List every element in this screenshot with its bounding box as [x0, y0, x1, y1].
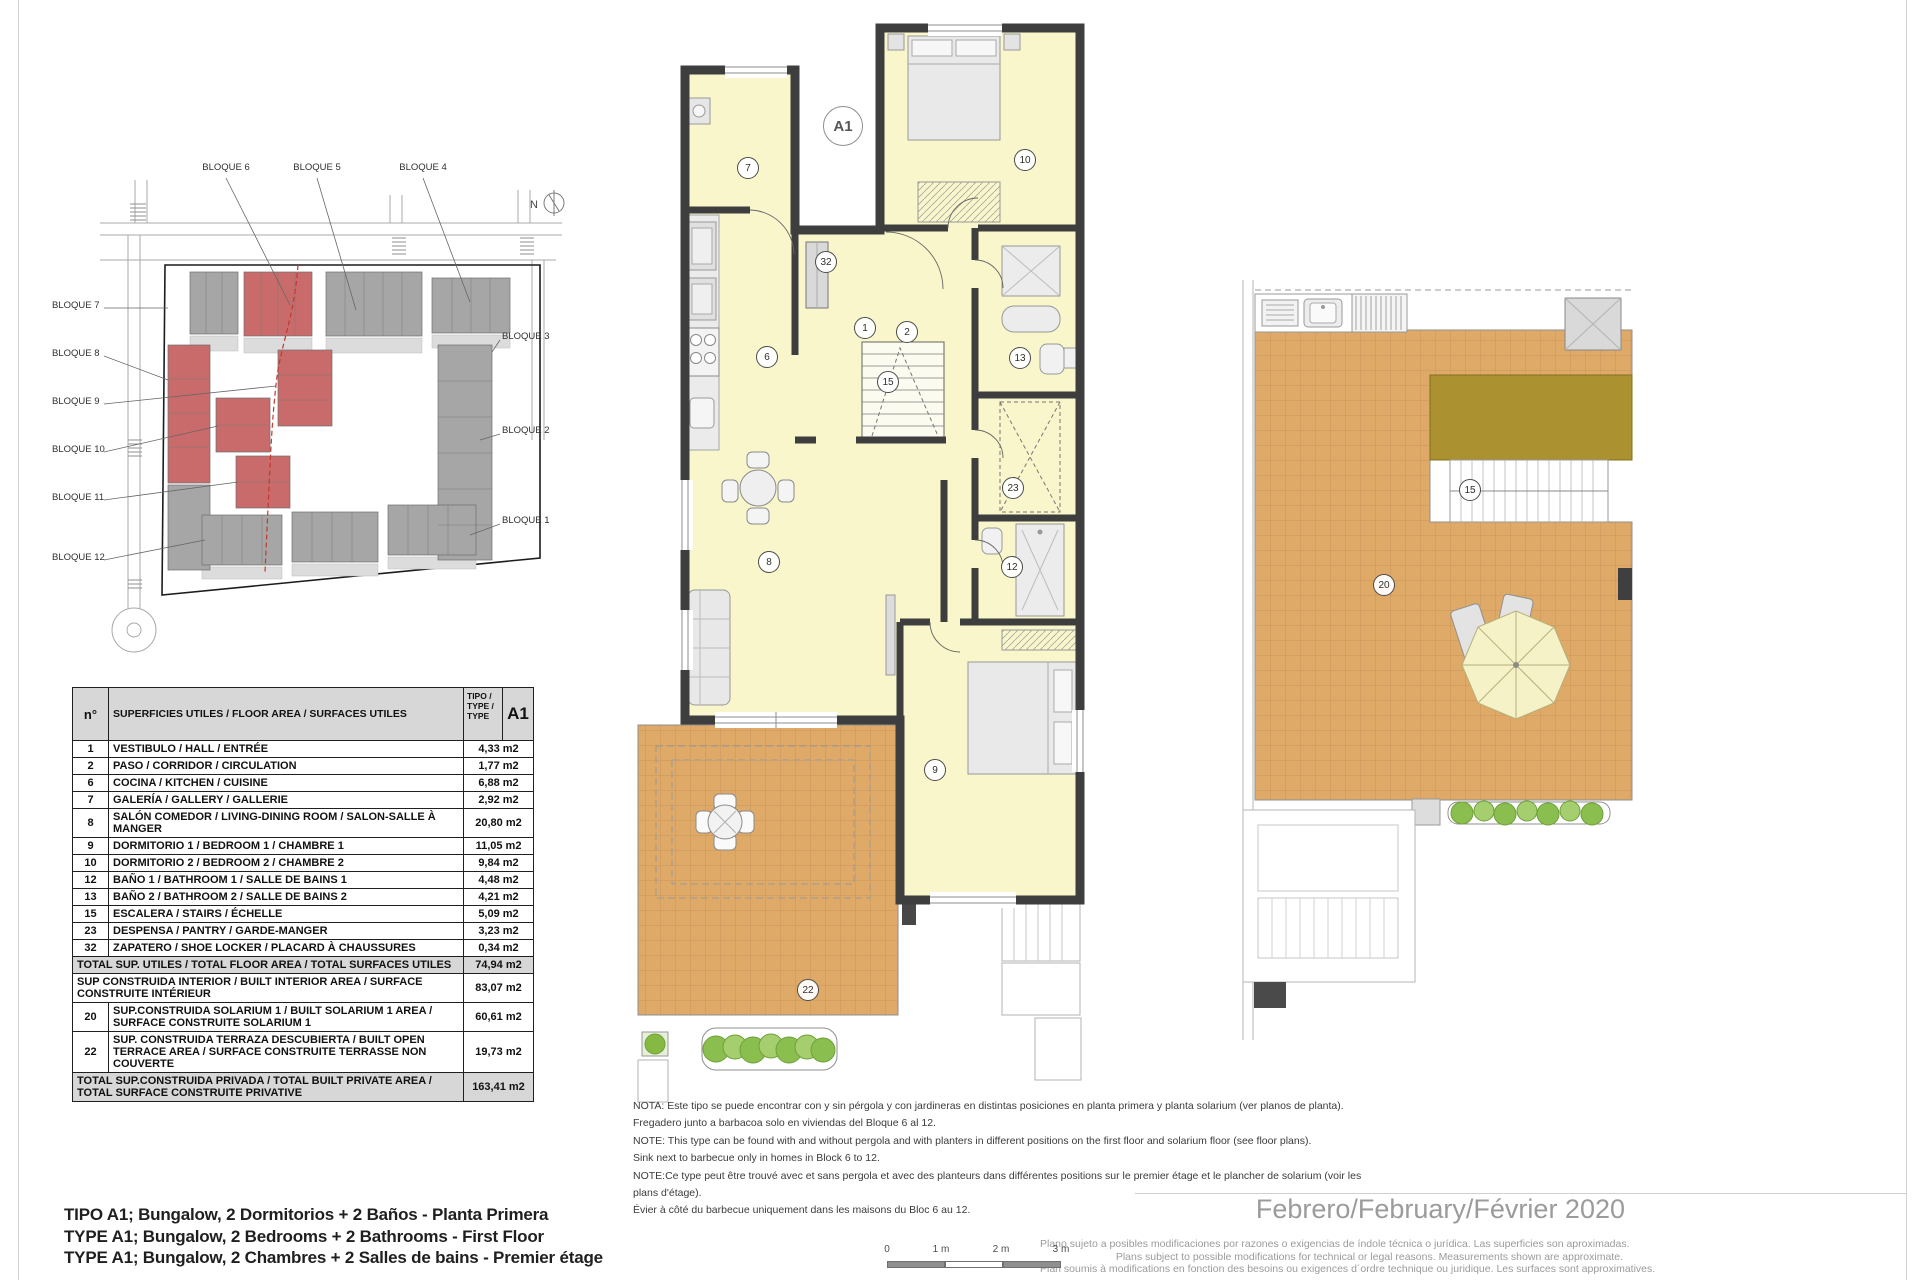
room-number-badge: 8: [758, 551, 780, 573]
area-row-label: BAÑO 1 / BATHROOM 1 / SALLE DE BAINS 1: [109, 872, 464, 889]
disclaimer-block: Plano sujeto a posibles modificaciones p…: [1040, 1238, 1623, 1276]
scale-label: 0: [870, 1244, 904, 1255]
access-hatch: [1618, 568, 1632, 600]
area-row-value: 4,48 m2: [464, 872, 534, 889]
room-number-badge: 12: [1001, 556, 1023, 578]
bathtub: [1002, 306, 1060, 332]
disclaimer-line: Plans subject to possible modifications …: [1040, 1251, 1623, 1264]
scale-label: 3 m: [1044, 1244, 1078, 1255]
room-number-badge: 10: [1014, 149, 1036, 171]
note-line: NOTE: This type can be found with and wi…: [633, 1133, 1361, 1150]
solarium-plan: 1520: [1240, 280, 1660, 1070]
plan-sheet: N BLOQUE 6BLOQUE 5BLOQUE 4BLOQUE 7BLOQUE…: [0, 0, 1920, 1280]
galeria-fixtures: [688, 98, 710, 124]
area-row-value: 4,21 m2: [464, 889, 534, 906]
area-row-value: 83,07 m2: [464, 974, 534, 1003]
area-row-value: 5,09 m2: [464, 906, 534, 923]
area-row-label: SUP CONSTRUIDA INTERIOR / BUILT INTERIOR…: [73, 974, 464, 1003]
area-table-row: 12BAÑO 1 / BATHROOM 1 / SALLE DE BAINS 1…: [73, 872, 534, 889]
kitchen-fixtures: [685, 215, 719, 450]
scale-segment: [945, 1261, 1003, 1268]
area-row-number: 12: [73, 872, 109, 889]
below-structures: [902, 903, 1081, 1080]
area-row-number: 32: [73, 940, 109, 957]
site-block-label: BLOQUE 8: [52, 348, 100, 359]
area-row-label: TOTAL SUP. UTILES / TOTAL FLOOR AREA / T…: [73, 957, 464, 974]
scale-segment: [887, 1261, 945, 1268]
site-block-label: BLOQUE 6: [200, 162, 252, 173]
site-block-label: BLOQUE 3: [502, 331, 550, 342]
area-row-label: GALERÍA / GALLERY / GALLERIE: [109, 792, 464, 809]
tv-unit: [886, 595, 895, 675]
plan-title-line: TYPE A1; Bungalow, 2 Bedrooms + 2 Bathro…: [64, 1226, 603, 1248]
note-line: NOTE:Ce type peut être trouvé avec et sa…: [633, 1168, 1361, 1185]
plan-title-line: TYPE A1; Bungalow, 2 Chambres + 2 Salles…: [64, 1247, 603, 1269]
area-table-row: 13BAÑO 2 / BATHROOM 2 / SALLE DE BAINS 2…: [73, 889, 534, 906]
floor-plan-drawing: [630, 10, 1090, 1140]
plan-title-line: TIPO A1; Bungalow, 2 Dormitorios + 2 Bañ…: [64, 1204, 603, 1226]
area-row-number: 23: [73, 923, 109, 940]
header-description: SUPERFICIES UTILES / FLOOR AREA / SURFAC…: [109, 688, 464, 741]
site-block-label: BLOQUE 9: [52, 396, 100, 407]
area-row-label: ESCALERA / STAIRS / ÉCHELLE: [109, 906, 464, 923]
area-row-value: 19,73 m2: [464, 1032, 534, 1073]
area-row-number: 9: [73, 838, 109, 855]
outdoor-shower: [1565, 298, 1621, 350]
scale-label: 2 m: [984, 1244, 1018, 1255]
area-row-number: 1: [73, 741, 109, 758]
room-number-badge: 15: [1459, 479, 1481, 501]
parasol: [1462, 611, 1570, 719]
site-block-label: BLOQUE 11: [52, 492, 104, 503]
area-row-label: SUP.CONSTRUIDA SOLARIUM 1 / BUILT SOLARI…: [109, 1003, 464, 1032]
sheet-border-left: [18, 0, 19, 1280]
area-row-label: TOTAL SUP.CONSTRUIDA PRIVADA / TOTAL BUI…: [73, 1073, 464, 1102]
site-block-label: BLOQUE 10: [52, 444, 105, 455]
area-table-row: 32ZAPATERO / SHOE LOCKER / PLACARD À CHA…: [73, 940, 534, 957]
area-row-value: 9,84 m2: [464, 855, 534, 872]
area-table-row: 23DESPENSA / PANTRY / GARDE-MANGER3,23 m…: [73, 923, 534, 940]
area-row-value: 11,05 m2: [464, 838, 534, 855]
wardrobe: [918, 182, 1000, 222]
site-block-label: BLOQUE 5: [291, 162, 343, 173]
area-row-label: BAÑO 2 / BATHROOM 2 / SALLE DE BAINS 2: [109, 889, 464, 906]
toilet: [982, 528, 1002, 554]
area-table-row: 6COCINA / KITCHEN / CUISINE6,88 m2: [73, 775, 534, 792]
area-row-value: 6,88 m2: [464, 775, 534, 792]
scale-bar: 01 m2 m3 m: [885, 1244, 1085, 1276]
cul-de-sac: [112, 608, 156, 652]
area-row-value: 0,34 m2: [464, 940, 534, 957]
site-block-label: BLOQUE 7: [52, 300, 100, 311]
area-row-number: 8: [73, 809, 109, 838]
area-table-row: 2PASO / CORRIDOR / CIRCULATION1,77 m2: [73, 758, 534, 775]
scale-label: 1 m: [924, 1244, 958, 1255]
solarium-planter: [1412, 799, 1610, 825]
area-row-number: 20: [73, 1003, 109, 1032]
solarium-drawing: [1240, 280, 1660, 1070]
area-table-row: 15ESCALERA / STAIRS / ÉCHELLE5,09 m2: [73, 906, 534, 923]
north-label: N: [530, 199, 538, 211]
area-row-number: 2: [73, 758, 109, 775]
room-number-badge: 1: [854, 317, 876, 339]
site-block-label: BLOQUE 2: [502, 425, 550, 436]
area-row-label: DESPENSA / PANTRY / GARDE-MANGER: [109, 923, 464, 940]
room-number-badge: 9: [924, 759, 946, 781]
site-plan-drawing: N: [40, 140, 580, 680]
room-number-badge: 15: [877, 371, 899, 393]
note-line: NOTA: Este tipo se puede encontrar con y…: [633, 1098, 1361, 1115]
unit-type-badge: A1: [823, 106, 863, 146]
area-table-row: 22SUP. CONSTRUIDA TERRAZA DESCUBIERTA / …: [73, 1032, 534, 1073]
area-row-label: COCINA / KITCHEN / CUISINE: [109, 775, 464, 792]
terrace-planters: [638, 1028, 837, 1102]
room-number-badge: 20: [1373, 574, 1395, 596]
room-number-badge: 13: [1009, 347, 1031, 369]
first-floor-plan: A1 71032121361523128922: [630, 10, 1090, 1140]
area-table-row: 7GALERÍA / GALLERY / GALLERIE2,92 m2: [73, 792, 534, 809]
plan-date: Febrero/February/Février 2020: [1140, 1194, 1625, 1225]
site-block-label: BLOQUE 4: [397, 162, 449, 173]
area-row-value: 4,33 m2: [464, 741, 534, 758]
room-number-badge: 32: [815, 251, 837, 273]
plan-titles: TIPO A1; Bungalow, 2 Dormitorios + 2 Bañ…: [64, 1204, 603, 1269]
room-number-badge: 22: [797, 979, 819, 1001]
area-row-value: 2,92 m2: [464, 792, 534, 809]
area-table-row: 20SUP.CONSTRUIDA SOLARIUM 1 / BUILT SOLA…: [73, 1003, 534, 1032]
site-block-label: BLOQUE 12: [52, 552, 105, 563]
area-row-label: SUP. CONSTRUIDA TERRAZA DESCUBIERTA / BU…: [109, 1032, 464, 1073]
area-row-number: 13: [73, 889, 109, 906]
kitchen-sink: [690, 398, 714, 428]
note-line: Fregadero junto a barbacoa solo en vivie…: [633, 1115, 1361, 1132]
area-row-label: SALÓN COMEDOR / LIVING-DINING ROOM / SAL…: [109, 809, 464, 838]
disclaimer-line: Plano sujeto a posibles modificaciones p…: [1040, 1238, 1623, 1251]
area-row-value: 163,41 m2: [464, 1073, 534, 1102]
area-table-row: TOTAL SUP. UTILES / TOTAL FLOOR AREA / T…: [73, 957, 534, 974]
sofa: [688, 590, 730, 705]
area-row-number: 15: [73, 906, 109, 923]
area-table-row: 1VESTIBULO / HALL / ENTRÉE4,33 m2: [73, 741, 534, 758]
area-table-row: TOTAL SUP.CONSTRUIDA PRIVADA / TOTAL BUI…: [73, 1073, 534, 1102]
area-row-value: 3,23 m2: [464, 923, 534, 940]
area-row-label: PASO / CORRIDOR / CIRCULATION: [109, 758, 464, 775]
header-type-code: A1: [502, 688, 533, 740]
area-row-value: 20,80 m2: [464, 809, 534, 838]
note-line: Sink next to barbecue only in homes in B…: [633, 1150, 1361, 1167]
area-table-header-row: n° SUPERFICIES UTILES / FLOOR AREA / SUR…: [73, 688, 534, 741]
pergola-roof: [1430, 375, 1632, 460]
area-table: n° SUPERFICIES UTILES / FLOOR AREA / SUR…: [72, 687, 533, 1102]
hob: [687, 328, 719, 376]
room-number-badge: 23: [1002, 477, 1024, 499]
room-number-badge: 2: [896, 321, 918, 343]
terrace: [638, 725, 898, 1015]
area-row-label: ZAPATERO / SHOE LOCKER / PLACARD À CHAUS…: [109, 940, 464, 957]
sheet-border-right: [1906, 0, 1907, 1280]
area-row-number: 7: [73, 792, 109, 809]
bbq-counter: [1255, 294, 1407, 332]
toilet: [1040, 344, 1064, 374]
area-row-label: VESTIBULO / HALL / ENTRÉE: [109, 741, 464, 758]
area-row-number: 10: [73, 855, 109, 872]
room-number-badge: 6: [756, 346, 778, 368]
area-table-row: 9DORMITORIO 1 / BEDROOM 1 / CHAMBRE 111,…: [73, 838, 534, 855]
disclaimer-line: Plan soumis à modifications en fonction …: [1040, 1263, 1623, 1276]
area-row-label: DORMITORIO 1 / BEDROOM 1 / CHAMBRE 1: [109, 838, 464, 855]
room-number-badge: 7: [737, 157, 759, 179]
area-row-number: 6: [73, 775, 109, 792]
header-number: n°: [73, 688, 109, 741]
wardrobe: [1002, 630, 1080, 650]
scale-segment: [1003, 1261, 1061, 1268]
barbecue: [1352, 294, 1407, 332]
cul-de-sac-center: [127, 623, 141, 637]
stairs: [862, 342, 944, 440]
area-table-row: 10DORMITORIO 2 / BEDROOM 2 / CHAMBRE 29,…: [73, 855, 534, 872]
area-row-label: DORMITORIO 2 / BEDROOM 2 / CHAMBRE 2: [109, 855, 464, 872]
area-row-value: 74,94 m2: [464, 957, 534, 974]
header-type: TIPO / TYPE / TYPE A1: [464, 688, 534, 741]
area-row-value: 60,61 m2: [464, 1003, 534, 1032]
area-row-value: 1,77 m2: [464, 758, 534, 775]
site-block-label: BLOQUE 1: [502, 515, 550, 526]
lower-floor-outline: [1243, 810, 1415, 1008]
site-plan: N BLOQUE 6BLOQUE 5BLOQUE 4BLOQUE 7BLOQUE…: [40, 140, 580, 680]
area-table-row: SUP CONSTRUIDA INTERIOR / BUILT INTERIOR…: [73, 974, 534, 1003]
area-table-row: 8SALÓN COMEDOR / LIVING-DINING ROOM / SA…: [73, 809, 534, 838]
north-compass-icon: [544, 190, 564, 216]
area-row-number: 22: [73, 1032, 109, 1073]
header-tipo-label: TIPO / TYPE / TYPE: [464, 688, 502, 740]
